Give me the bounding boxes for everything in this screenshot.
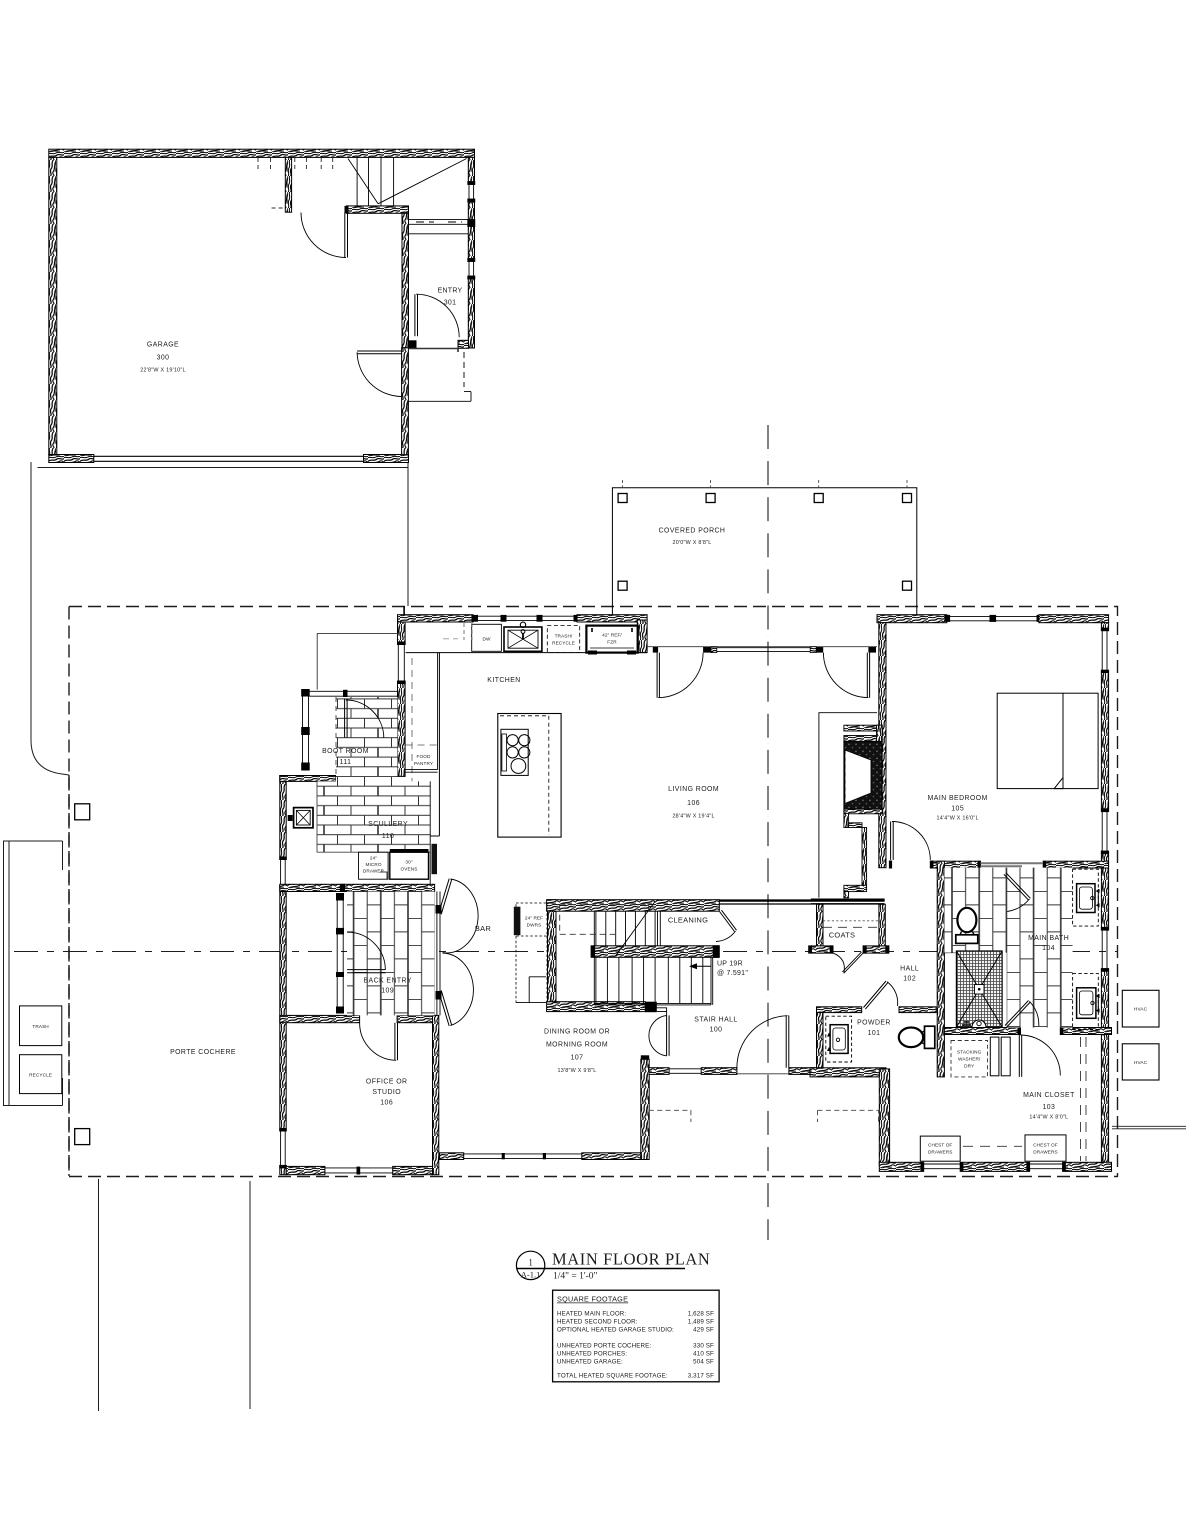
svg-text:MAIN BATH: MAIN BATH xyxy=(1028,935,1069,942)
svg-text:504 SF: 504 SF xyxy=(693,1359,714,1366)
svg-text:MICRO: MICRO xyxy=(365,862,381,867)
svg-text:106: 106 xyxy=(687,800,700,807)
svg-text:1: 1 xyxy=(528,1258,533,1268)
svg-text:TRASH: TRASH xyxy=(32,1024,48,1029)
svg-text:101: 101 xyxy=(868,1030,881,1037)
svg-text:DWRS: DWRS xyxy=(527,923,542,928)
svg-text:CLEANING: CLEANING xyxy=(668,916,708,925)
svg-text:A-1.1: A-1.1 xyxy=(521,1270,541,1280)
svg-text:UNHEATED PORCHES:: UNHEATED PORCHES: xyxy=(557,1351,627,1358)
svg-text:RECYCLE: RECYCLE xyxy=(552,641,575,646)
svg-text:ENTRY: ENTRY xyxy=(438,288,463,295)
svg-text:STACKING: STACKING xyxy=(957,1050,982,1055)
svg-text:PANTRY: PANTRY xyxy=(414,761,434,766)
svg-text:HVAC: HVAC xyxy=(1134,1060,1148,1065)
svg-text:14'4"W X 8'0"L: 14'4"W X 8'0"L xyxy=(1029,1115,1068,1121)
svg-text:COVERED PORCH: COVERED PORCH xyxy=(659,528,726,535)
svg-text:SCULLERY: SCULLERY xyxy=(368,821,408,828)
svg-text:LIVING ROOM: LIVING ROOM xyxy=(668,786,719,793)
svg-text:DRAWERS: DRAWERS xyxy=(1033,1150,1058,1155)
svg-text:300: 300 xyxy=(157,355,170,362)
svg-text:109: 109 xyxy=(381,988,394,995)
svg-text:UP 19R: UP 19R xyxy=(717,961,743,968)
svg-text:OVENS: OVENS xyxy=(401,867,418,872)
svg-text:BACK ENTRY: BACK ENTRY xyxy=(363,978,411,985)
svg-text:107: 107 xyxy=(571,1055,584,1062)
svg-text:COATS: COATS xyxy=(829,931,856,940)
svg-text:MAIN BEDROOM: MAIN BEDROOM xyxy=(928,795,988,802)
svg-text:330 SF: 330 SF xyxy=(693,1343,714,1350)
svg-text:HALL: HALL xyxy=(900,966,919,973)
svg-text:BOOT ROOM: BOOT ROOM xyxy=(322,748,369,755)
svg-text:MORNING ROOM: MORNING ROOM xyxy=(546,1042,608,1049)
svg-text:100: 100 xyxy=(710,1027,723,1034)
svg-text:HEATED SECOND FLOOR:: HEATED SECOND FLOOR: xyxy=(557,1319,638,1326)
svg-text:DRAWER: DRAWER xyxy=(363,869,385,874)
svg-text:@ 7.591": @ 7.591" xyxy=(717,970,748,977)
svg-text:WASHER/: WASHER/ xyxy=(958,1057,981,1062)
svg-text:HVAC: HVAC xyxy=(1134,1007,1148,1012)
svg-text:20'0"W X 8'8"L: 20'0"W X 8'8"L xyxy=(672,540,711,546)
svg-text:TRASH/: TRASH/ xyxy=(555,634,573,639)
svg-text:DRY: DRY xyxy=(964,1064,975,1069)
svg-text:STAIR HALL: STAIR HALL xyxy=(694,1017,737,1024)
svg-text:GARAGE: GARAGE xyxy=(147,342,179,349)
svg-text:104: 104 xyxy=(1042,945,1055,952)
svg-text:429 SF: 429 SF xyxy=(693,1327,714,1334)
svg-text:DW: DW xyxy=(482,637,490,642)
svg-text:13'8"W X 9'8"L: 13'8"W X 9'8"L xyxy=(557,1068,596,1074)
svg-text:30": 30" xyxy=(405,860,412,865)
svg-text:OFFICE OR: OFFICE OR xyxy=(366,1079,408,1086)
svg-text:1,628 SF: 1,628 SF xyxy=(688,1311,714,1318)
svg-text:102: 102 xyxy=(903,976,916,983)
svg-text:UNHEATED PORTE COCHERE:: UNHEATED PORTE COCHERE: xyxy=(557,1343,651,1350)
svg-text:111: 111 xyxy=(340,759,352,766)
svg-text:DRAWERS: DRAWERS xyxy=(928,1150,953,1155)
svg-text:STUDIO: STUDIO xyxy=(372,1089,401,1096)
svg-text:MAIN FLOOR PLAN: MAIN FLOOR PLAN xyxy=(552,1250,710,1269)
svg-text:24" REF: 24" REF xyxy=(525,916,543,921)
svg-text:301: 301 xyxy=(444,300,456,307)
svg-text:14'4"W X 16'0"L: 14'4"W X 16'0"L xyxy=(937,816,979,822)
svg-text:103: 103 xyxy=(1042,1104,1055,1111)
svg-text:1/4" = 1'-0": 1/4" = 1'-0" xyxy=(553,1272,598,1282)
svg-text:UNHEATED GARAGE:: UNHEATED GARAGE: xyxy=(557,1359,623,1366)
svg-text:FZR: FZR xyxy=(607,640,617,645)
svg-text:1,489 SF: 1,489 SF xyxy=(688,1319,714,1326)
svg-text:410 SF: 410 SF xyxy=(693,1351,714,1358)
svg-text:CHEST OF: CHEST OF xyxy=(1033,1143,1057,1148)
svg-text:KITCHEN: KITCHEN xyxy=(487,677,520,684)
svg-text:SQUARE FOOTAGE: SQUARE FOOTAGE xyxy=(557,1295,628,1304)
svg-text:TOTAL HEATED SQUARE FOOTAGE:: TOTAL HEATED SQUARE FOOTAGE: xyxy=(557,1373,668,1380)
svg-text:PORTE COCHERE: PORTE COCHERE xyxy=(170,1049,236,1056)
svg-text:110: 110 xyxy=(382,833,394,840)
svg-text:MAIN CLOSET: MAIN CLOSET xyxy=(1023,1092,1075,1099)
svg-text:CHEST OF: CHEST OF xyxy=(928,1143,952,1148)
svg-text:RECYCLE: RECYCLE xyxy=(29,1072,52,1077)
svg-text:105: 105 xyxy=(951,806,964,813)
svg-text:106: 106 xyxy=(380,1100,393,1107)
svg-text:HEATED MAIN FLOOR:: HEATED MAIN FLOOR: xyxy=(557,1311,626,1318)
svg-text:28'4"W X 19'4"L: 28'4"W X 19'4"L xyxy=(672,814,714,820)
svg-text:OPTIONAL HEATED GARAGE STUDIO:: OPTIONAL HEATED GARAGE STUDIO: xyxy=(557,1327,674,1334)
svg-text:FOOD: FOOD xyxy=(417,754,431,759)
svg-text:42" REF/: 42" REF/ xyxy=(602,633,622,638)
svg-text:BAR: BAR xyxy=(475,924,492,933)
svg-text:22'8"W X 19'10"L: 22'8"W X 19'10"L xyxy=(140,368,186,374)
svg-text:POWDER: POWDER xyxy=(857,1020,891,1027)
svg-text:24": 24" xyxy=(370,856,377,861)
svg-text:3,317 SF: 3,317 SF xyxy=(688,1373,714,1380)
svg-text:DINING ROOM OR: DINING ROOM OR xyxy=(544,1029,610,1036)
